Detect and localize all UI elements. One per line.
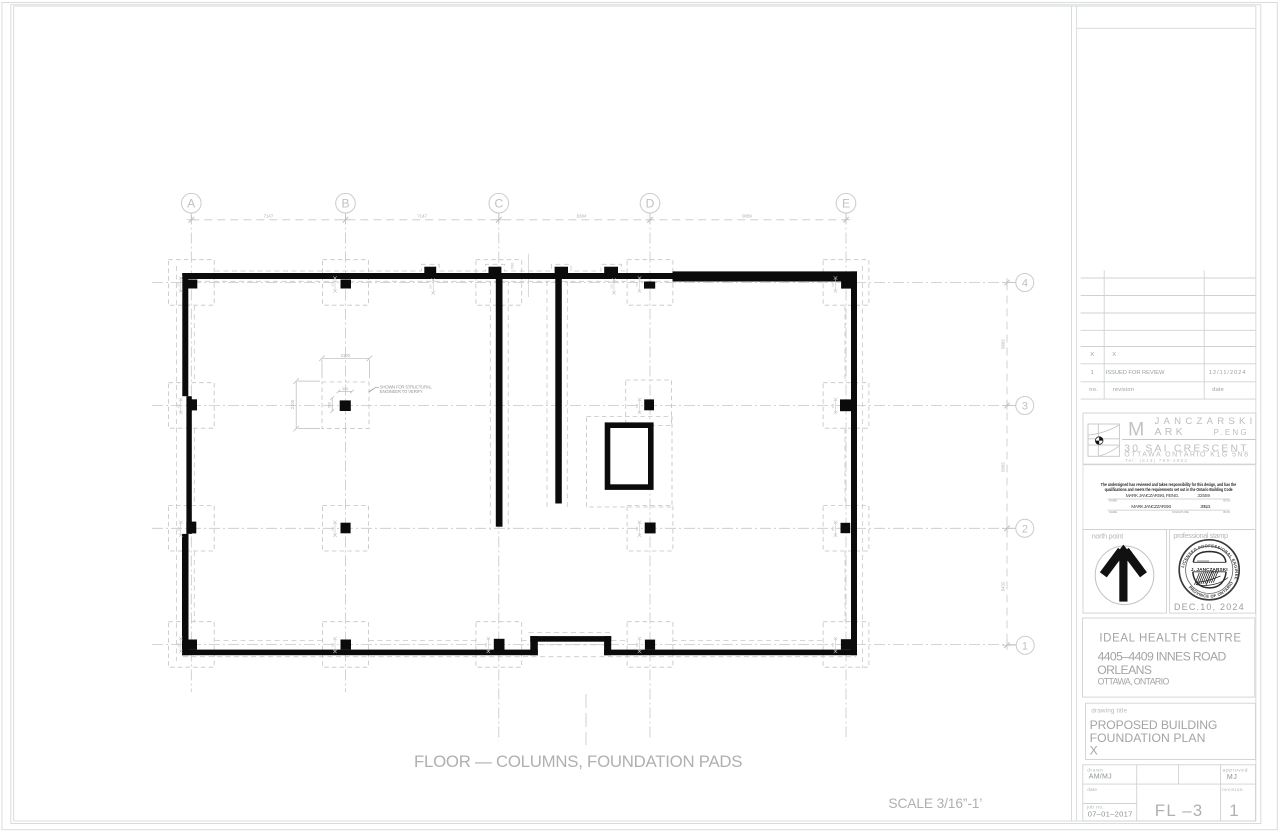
svg-text:B: B (341, 197, 349, 211)
svg-text:IDEAL HEALTH CENTRE: IDEAL HEALTH CENTRE (1099, 633, 1241, 645)
svg-text:X: X (1090, 352, 1094, 358)
svg-text:500: 500 (176, 403, 180, 408)
svg-text:500: 500 (831, 526, 835, 531)
svg-text:C: C (494, 197, 503, 211)
svg-text:DEC.10, 2024: DEC.10, 2024 (1174, 602, 1244, 612)
svg-text:4: 4 (1022, 278, 1028, 290)
svg-text:500: 500 (635, 282, 639, 287)
svg-text:500: 500 (331, 642, 335, 647)
svg-text:8384: 8384 (577, 214, 587, 219)
svg-text:revision: revision (1222, 787, 1243, 793)
svg-text:FL –3: FL –3 (1155, 801, 1202, 820)
svg-text:500: 500 (610, 284, 614, 289)
svg-text:E: E (842, 197, 850, 211)
svg-text:Tel: (613) 799-4982: Tel: (613) 799-4982 (1125, 458, 1187, 464)
svg-text:32559: 32559 (1197, 493, 1210, 499)
svg-text:OTTAWA, ONTARIO: OTTAWA, ONTARIO (1098, 677, 1170, 687)
svg-text:J. JANCZARSKI: J. JANCZARSKI (1191, 567, 1228, 572)
svg-text:500: 500 (328, 402, 332, 408)
svg-text:ORLEANS: ORLEANS (1097, 663, 1152, 677)
svg-text:1: 1 (1229, 801, 1238, 820)
svg-text:500: 500 (331, 526, 335, 531)
svg-text:3: 3 (1022, 401, 1028, 413)
svg-text:2100: 2100 (341, 353, 351, 358)
svg-text:MARK JANCZZARSKI: MARK JANCZZARSKI (1131, 504, 1171, 510)
svg-text:MJ: MJ (1227, 774, 1237, 781)
svg-text:FLOOR — COLUMNS, FOUNDATION PA: FLOOR — COLUMNS, FOUNDATION PADS (414, 752, 743, 771)
svg-text:ARK: ARK (1155, 426, 1183, 438)
svg-text:ENGINEER TO VERIFY: ENGINEER TO VERIFY (380, 389, 423, 394)
svg-text:500: 500 (342, 387, 348, 391)
svg-text:SIGNATURE: SIGNATURE (1172, 510, 1189, 514)
svg-text:500: 500 (331, 282, 335, 287)
svg-text:200: 200 (510, 262, 515, 269)
svg-text:500: 500 (429, 284, 433, 289)
svg-text:1: 1 (1091, 370, 1094, 376)
svg-text:FOUNDATION PLAN: FOUNDATION PLAN (1090, 731, 1206, 745)
svg-text:X: X (1112, 352, 1116, 358)
svg-text:professional stamp: professional stamp (1173, 531, 1228, 540)
svg-text:500: 500 (635, 403, 639, 408)
svg-text:NAME: NAME (1109, 499, 1117, 503)
svg-text:500: 500 (831, 282, 835, 287)
svg-text:500: 500 (176, 526, 180, 531)
svg-text:500: 500 (176, 642, 180, 647)
svg-text:07–01–2017: 07–01–2017 (1088, 810, 1133, 819)
svg-text:500: 500 (831, 642, 835, 647)
svg-text:X: X (1090, 743, 1098, 757)
svg-text:29521: 29521 (1200, 504, 1211, 510)
svg-text:2: 2 (1022, 523, 1028, 535)
svg-text:D: D (646, 197, 655, 211)
svg-text:9089: 9089 (742, 214, 752, 219)
svg-text:5682: 5682 (1001, 462, 1006, 472)
svg-text:revision: revision (1113, 387, 1135, 393)
svg-text:AM/MJ: AM/MJ (1089, 774, 1112, 781)
svg-text:500: 500 (635, 526, 639, 531)
svg-text:PROPOSED BUILDING: PROPOSED BUILDING (1090, 718, 1218, 732)
svg-text:1: 1 (1022, 640, 1028, 652)
svg-text:500: 500 (484, 642, 488, 647)
svg-text:qualifications and meets the r: qualifications and meets the requirement… (1105, 487, 1233, 492)
svg-text:date: date (1212, 387, 1224, 393)
svg-text:12/11/2024: 12/11/2024 (1209, 370, 1247, 376)
svg-text:500: 500 (831, 403, 835, 408)
svg-text:500: 500 (176, 282, 180, 287)
svg-text:5432: 5432 (1001, 581, 1006, 591)
svg-text:7147: 7147 (264, 214, 274, 219)
svg-text:SCALE 3/16”-1’: SCALE 3/16”-1’ (888, 796, 982, 811)
svg-text:BCIN: BCIN (1223, 510, 1230, 514)
svg-text:5682: 5682 (1001, 339, 1006, 349)
svg-text:NAME: NAME (1109, 510, 1117, 514)
svg-text:BCIN: BCIN (1223, 499, 1230, 503)
svg-text:OTTAWA ONTARIO K1G 5N8: OTTAWA ONTARIO K1G 5N8 (1124, 452, 1248, 459)
svg-text:M: M (1128, 418, 1144, 440)
svg-text:no.: no. (1089, 387, 1098, 393)
svg-text:A: A (187, 197, 195, 211)
svg-text:north point: north point (1092, 531, 1124, 540)
svg-text:drawing title: drawing title (1091, 708, 1127, 715)
svg-text:ISSUED FOR REVIEW: ISSUED FOR REVIEW (1106, 370, 1165, 376)
svg-text:approved: approved (1223, 768, 1248, 774)
svg-text:2100: 2100 (290, 399, 295, 409)
svg-text:4405–4409 INNES ROAD: 4405–4409 INNES ROAD (1098, 649, 1227, 663)
svg-text:MARK JANCZARSKI, P.ENG.: MARK JANCZARSKI, P.ENG. (1126, 493, 1180, 499)
svg-text:date: date (1087, 787, 1097, 793)
svg-text:7147: 7147 (417, 214, 427, 219)
svg-text:500: 500 (635, 642, 639, 647)
